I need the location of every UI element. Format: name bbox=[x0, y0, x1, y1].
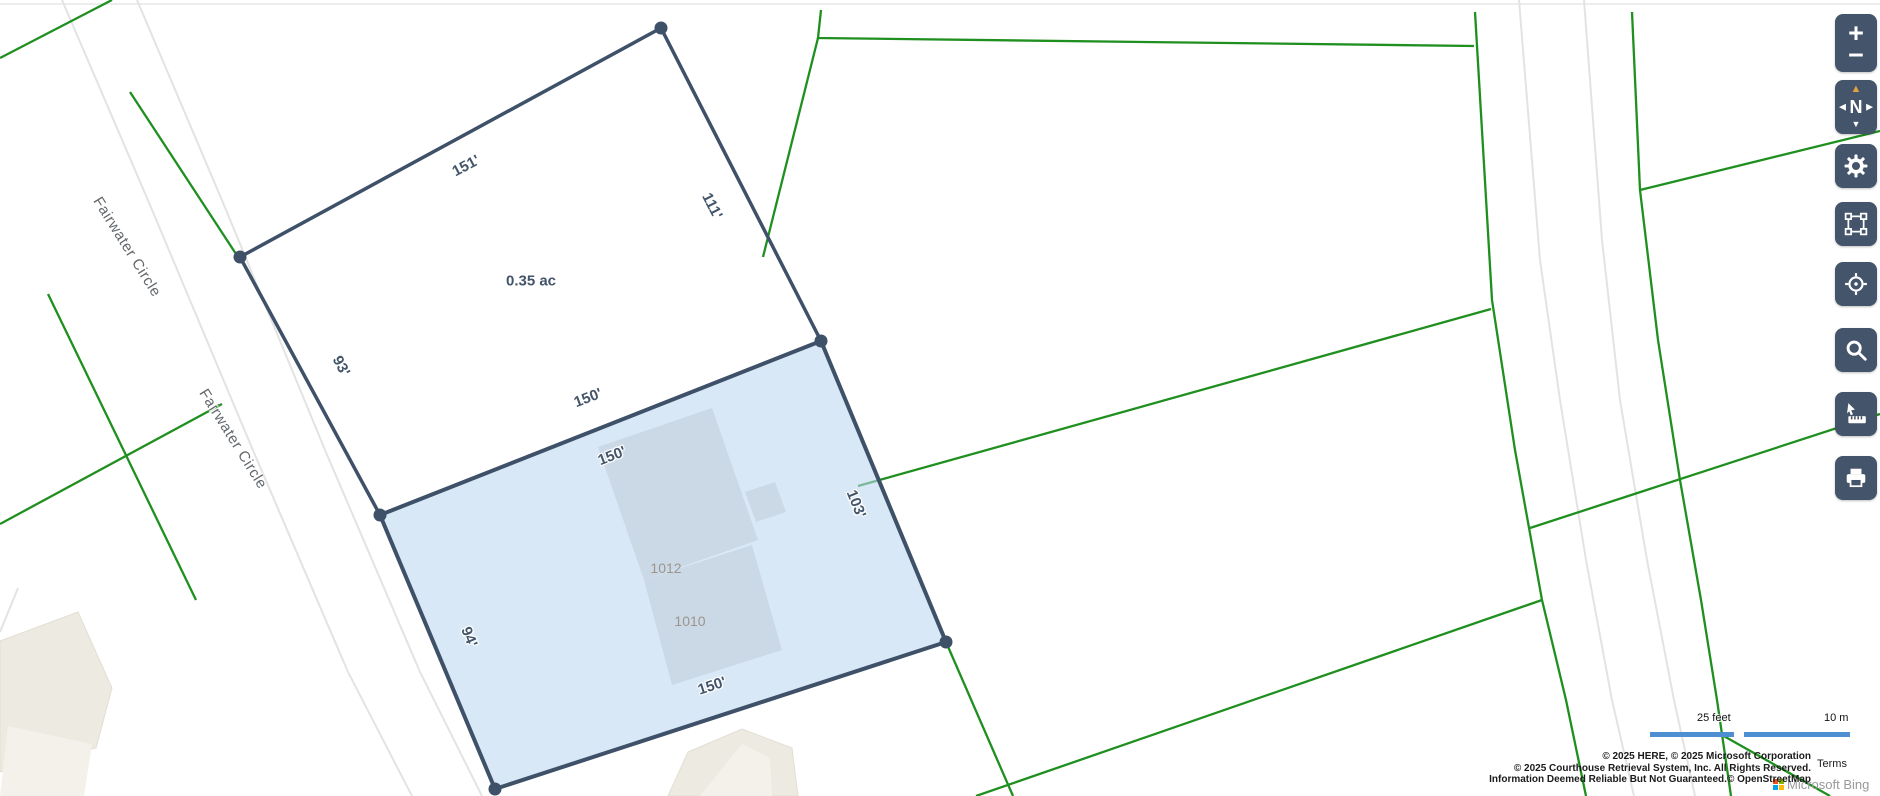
locate-crosshair-icon bbox=[1844, 272, 1868, 296]
zoom-control[interactable]: + − bbox=[1835, 14, 1877, 72]
parcel-number-1010: 1010 bbox=[674, 613, 705, 629]
extent-rectangle-icon bbox=[1844, 212, 1868, 236]
compass-left-icon[interactable]: ◀ bbox=[1839, 103, 1846, 112]
map-viewport[interactable]: 151' 111' 0.35 ac 93' 150' 150' 103' 94'… bbox=[0, 0, 1880, 796]
gear-icon bbox=[1844, 154, 1868, 178]
search-magnifier-icon bbox=[1844, 338, 1868, 362]
road-right bbox=[1519, 0, 1695, 796]
compass-north-label[interactable]: N bbox=[1850, 98, 1863, 116]
print-button[interactable] bbox=[1835, 456, 1877, 500]
scale-bar-meters bbox=[1744, 732, 1850, 737]
settings-button[interactable] bbox=[1835, 144, 1877, 188]
parcel-boundary-lines-green bbox=[0, 0, 1880, 796]
compass-up-icon[interactable]: ▲ bbox=[1851, 85, 1862, 94]
scale-meters-label: 10 m bbox=[1824, 712, 1848, 724]
measure-button[interactable] bbox=[1835, 392, 1877, 436]
compass-right-icon[interactable]: ▶ bbox=[1866, 103, 1873, 112]
parcel-map-canvas[interactable] bbox=[0, 0, 1880, 796]
locate-button[interactable] bbox=[1835, 262, 1877, 306]
measure-ruler-icon bbox=[1844, 402, 1868, 426]
search-button[interactable] bbox=[1835, 328, 1877, 372]
parcel-number-1012: 1012 bbox=[650, 560, 681, 576]
attribution-line-3: Information Deemed Reliable But Not Guar… bbox=[1489, 774, 1811, 786]
attribution-line-2: © 2025 Courthouse Retrieval System, Inc.… bbox=[1489, 763, 1811, 775]
attribution-line-1: © 2025 HERE, © 2025 Microsoft Corporatio… bbox=[1489, 751, 1811, 763]
print-icon bbox=[1844, 466, 1868, 490]
compass-control[interactable]: ▲ ◀ N ▶ ▼ bbox=[1835, 80, 1877, 134]
area-label: 0.35 ac bbox=[506, 273, 556, 290]
extent-select-button[interactable] bbox=[1835, 202, 1877, 246]
scale-bar-feet bbox=[1650, 732, 1734, 737]
scale-feet-label: 25 feet bbox=[1697, 712, 1731, 724]
compass-down-icon[interactable]: ▼ bbox=[1852, 120, 1861, 129]
zoom-out-icon[interactable]: − bbox=[1848, 45, 1864, 65]
terms-link[interactable]: Terms bbox=[1817, 758, 1847, 770]
map-attribution: © 2025 HERE, © 2025 Microsoft Corporatio… bbox=[1489, 751, 1811, 786]
